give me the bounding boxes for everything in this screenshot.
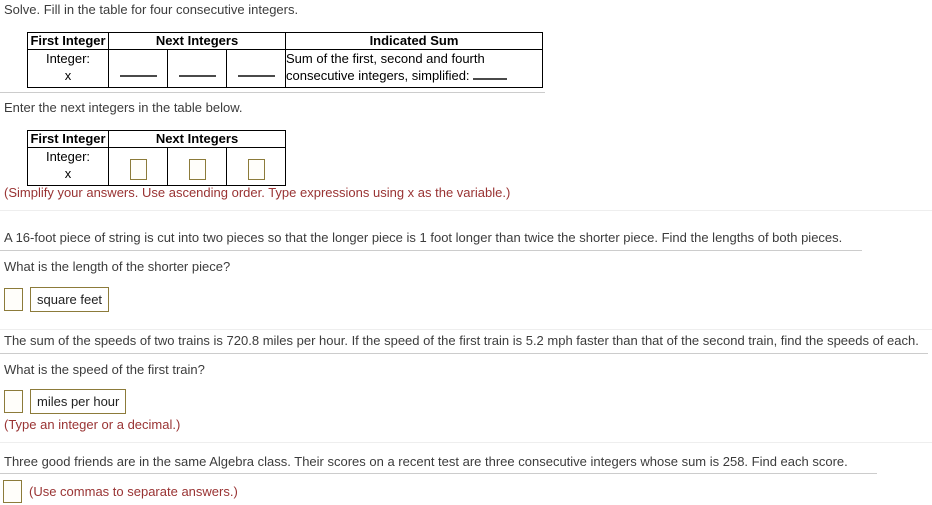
problem-1-prompt: Solve. Fill in the table for four consec… xyxy=(4,3,298,17)
first-integer-cell: Integer: x xyxy=(28,148,109,186)
problem-5-instruction-note: (Use commas to separate answers.) xyxy=(29,484,238,499)
next-integer-input-cell-1 xyxy=(109,148,168,186)
blank-underline xyxy=(473,78,507,80)
integer-label: Integer: xyxy=(28,50,108,67)
section-divider xyxy=(0,353,928,354)
next-integer-blank-2 xyxy=(168,50,227,88)
next-integer-input-cell-2 xyxy=(168,148,227,186)
problem-4-statement: The sum of the speeds of two trains is 7… xyxy=(4,334,919,348)
section-divider xyxy=(0,92,545,93)
problem-3-statement: A 16-foot piece of string is cut into tw… xyxy=(4,231,842,245)
problem-divider xyxy=(0,329,932,330)
unit-dropdown[interactable]: square feet xyxy=(30,287,109,312)
header-first-integer: First Integer xyxy=(28,33,109,50)
problem-2-instruction-note: (Simplify your answers. Use ascending or… xyxy=(4,186,510,200)
integer-variable: x xyxy=(28,67,108,84)
problem-5-statement: Three good friends are in the same Algeb… xyxy=(4,455,848,469)
answer-input-3[interactable] xyxy=(248,159,265,180)
problem-divider xyxy=(0,442,932,443)
sum-description-line2: consecutive integers, simplified: xyxy=(286,67,542,84)
section-divider xyxy=(0,473,877,474)
table-header-row: First Integer Next Integers xyxy=(28,131,286,148)
problem-2-table: First Integer Next Integers Integer: x xyxy=(27,130,286,186)
problem-1-table: First Integer Next Integers Indicated Su… xyxy=(27,32,543,88)
problem-5-answer-row: (Use commas to separate answers.) xyxy=(3,480,238,503)
answer-input-box[interactable] xyxy=(4,288,23,311)
problem-divider xyxy=(0,210,932,211)
unit-dropdown[interactable]: miles per hour xyxy=(30,389,126,414)
integer-label: Integer: xyxy=(28,148,108,165)
answer-input-box[interactable] xyxy=(3,480,22,503)
section-divider xyxy=(0,250,862,251)
problem-4-question: What is the speed of the first train? xyxy=(4,363,205,377)
sum-description-line1: Sum of the first, second and fourth xyxy=(286,50,542,67)
problem-3-question: What is the length of the shorter piece? xyxy=(4,260,230,274)
table-row: Integer: x xyxy=(28,148,286,186)
problem-4-instruction-note: (Type an integer or a decimal.) xyxy=(4,418,180,432)
header-next-integers: Next Integers xyxy=(109,33,286,50)
header-indicated-sum: Indicated Sum xyxy=(286,33,543,50)
next-integer-blank-3 xyxy=(227,50,286,88)
problem-2-prompt: Enter the next integers in the table bel… xyxy=(4,101,243,115)
answer-input-2[interactable] xyxy=(189,159,206,180)
answer-input-box[interactable] xyxy=(4,390,23,413)
header-first-integer: First Integer xyxy=(28,131,109,148)
problem-3-answer-row: square feet xyxy=(4,287,109,312)
integer-variable: x xyxy=(28,165,108,182)
next-integer-input-cell-3 xyxy=(227,148,286,186)
blank-underline xyxy=(120,75,157,77)
header-next-integers: Next Integers xyxy=(109,131,286,148)
answer-input-1[interactable] xyxy=(130,159,147,180)
blank-underline xyxy=(238,75,275,77)
first-integer-cell: Integer: x xyxy=(28,50,109,88)
next-integer-blank-1 xyxy=(109,50,168,88)
problem-4-answer-row: miles per hour xyxy=(4,389,126,414)
indicated-sum-cell: Sum of the first, second and fourth cons… xyxy=(286,50,543,88)
table-header-row: First Integer Next Integers Indicated Su… xyxy=(28,33,543,50)
blank-underline xyxy=(179,75,216,77)
table-row: Integer: x Sum of the first, second and … xyxy=(28,50,543,88)
homework-page: Solve. Fill in the table for four consec… xyxy=(0,0,932,505)
